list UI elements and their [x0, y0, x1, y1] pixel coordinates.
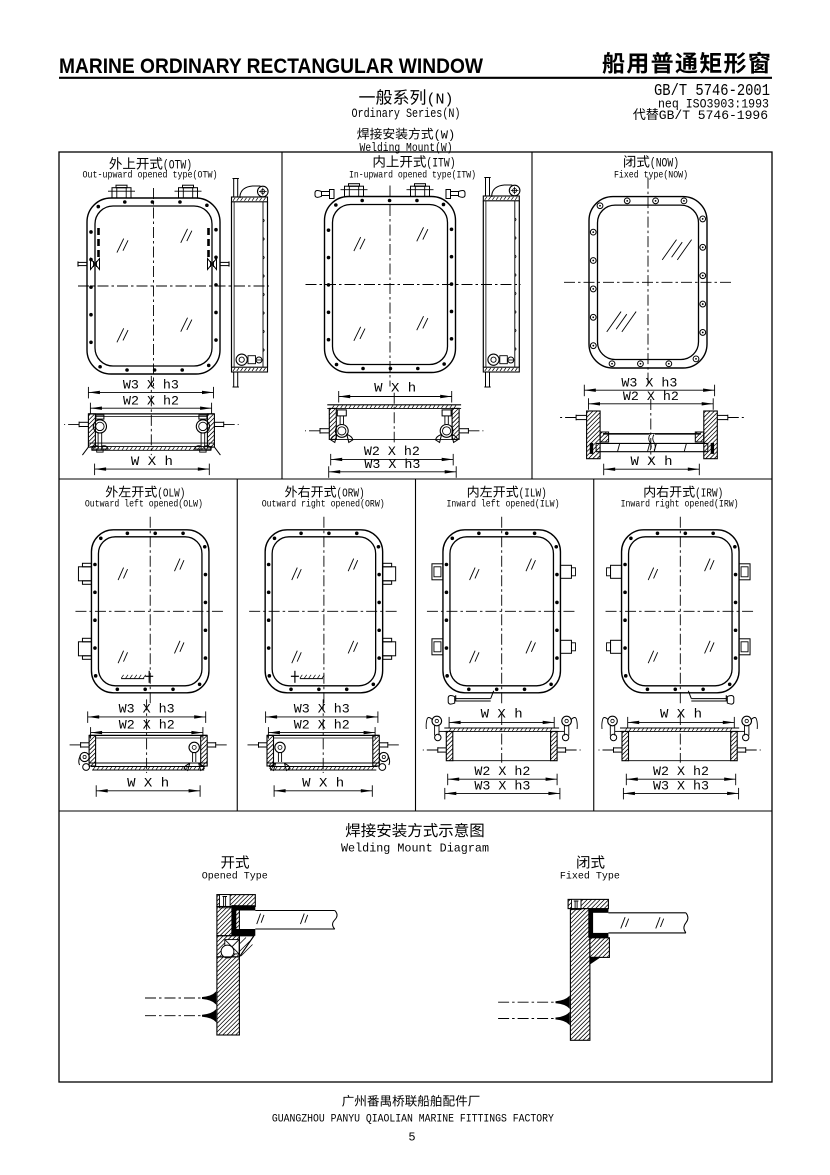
- svg-text:(NOW): (NOW): [650, 157, 679, 171]
- svg-text:MARINE ORDINARY RECTANGULAR WI: MARINE ORDINARY RECTANGULAR WINDOW: [59, 54, 484, 78]
- svg-text:Fixed Type: Fixed Type: [560, 871, 620, 883]
- svg-text:Opened Type: Opened Type: [202, 871, 268, 883]
- svg-text:W2 X h2: W2 X h2: [294, 718, 350, 733]
- svg-text:W X h: W X h: [660, 707, 702, 722]
- svg-text:W2 X h2: W2 X h2: [474, 764, 530, 779]
- svg-text:W3 X h3: W3 X h3: [474, 778, 530, 793]
- svg-text:GUANGZHOU PANYU QIAOLIAN MARIN: GUANGZHOU PANYU QIAOLIAN MARINE FITTINGS…: [272, 1114, 554, 1126]
- svg-text:5: 5: [408, 1131, 415, 1145]
- svg-text:W X h: W X h: [131, 454, 173, 469]
- svg-text:W3 X h3: W3 X h3: [364, 457, 420, 472]
- svg-text:Outward left opened(OLW): Outward left opened(OLW): [85, 499, 203, 511]
- svg-text:W X h: W X h: [127, 775, 169, 790]
- svg-text:Inward right opened(IRW): Inward right opened(IRW): [621, 499, 739, 511]
- svg-text:Fixed type(NOW): Fixed type(NOW): [614, 170, 688, 182]
- svg-text:W3 X h3: W3 X h3: [294, 702, 350, 717]
- svg-text:GB/T 5746-1996: GB/T 5746-1996: [659, 108, 768, 123]
- svg-text:Welding Mount Diagram: Welding Mount Diagram: [341, 842, 489, 856]
- svg-text:Outward right opened(ORW): Outward right opened(ORW): [262, 499, 385, 511]
- svg-text:W X h: W X h: [374, 381, 416, 396]
- svg-text:W3 X h3: W3 X h3: [653, 778, 709, 793]
- svg-text:W X h: W X h: [302, 775, 344, 790]
- svg-text:Welding Mount(W): Welding Mount(W): [360, 141, 453, 155]
- svg-text:W2 X h2: W2 X h2: [653, 764, 709, 779]
- svg-text:W X h: W X h: [631, 454, 673, 469]
- svg-text:Out-upward opened type(OTW): Out-upward opened type(OTW): [83, 170, 218, 182]
- svg-text:(ITW): (ITW): [426, 157, 455, 171]
- svg-text:In-upward opened type(ITW): In-upward opened type(ITW): [349, 170, 476, 182]
- svg-text:Ordinary Series(N): Ordinary Series(N): [352, 106, 461, 121]
- svg-text:Inward left opened(ILW): Inward left opened(ILW): [447, 499, 560, 511]
